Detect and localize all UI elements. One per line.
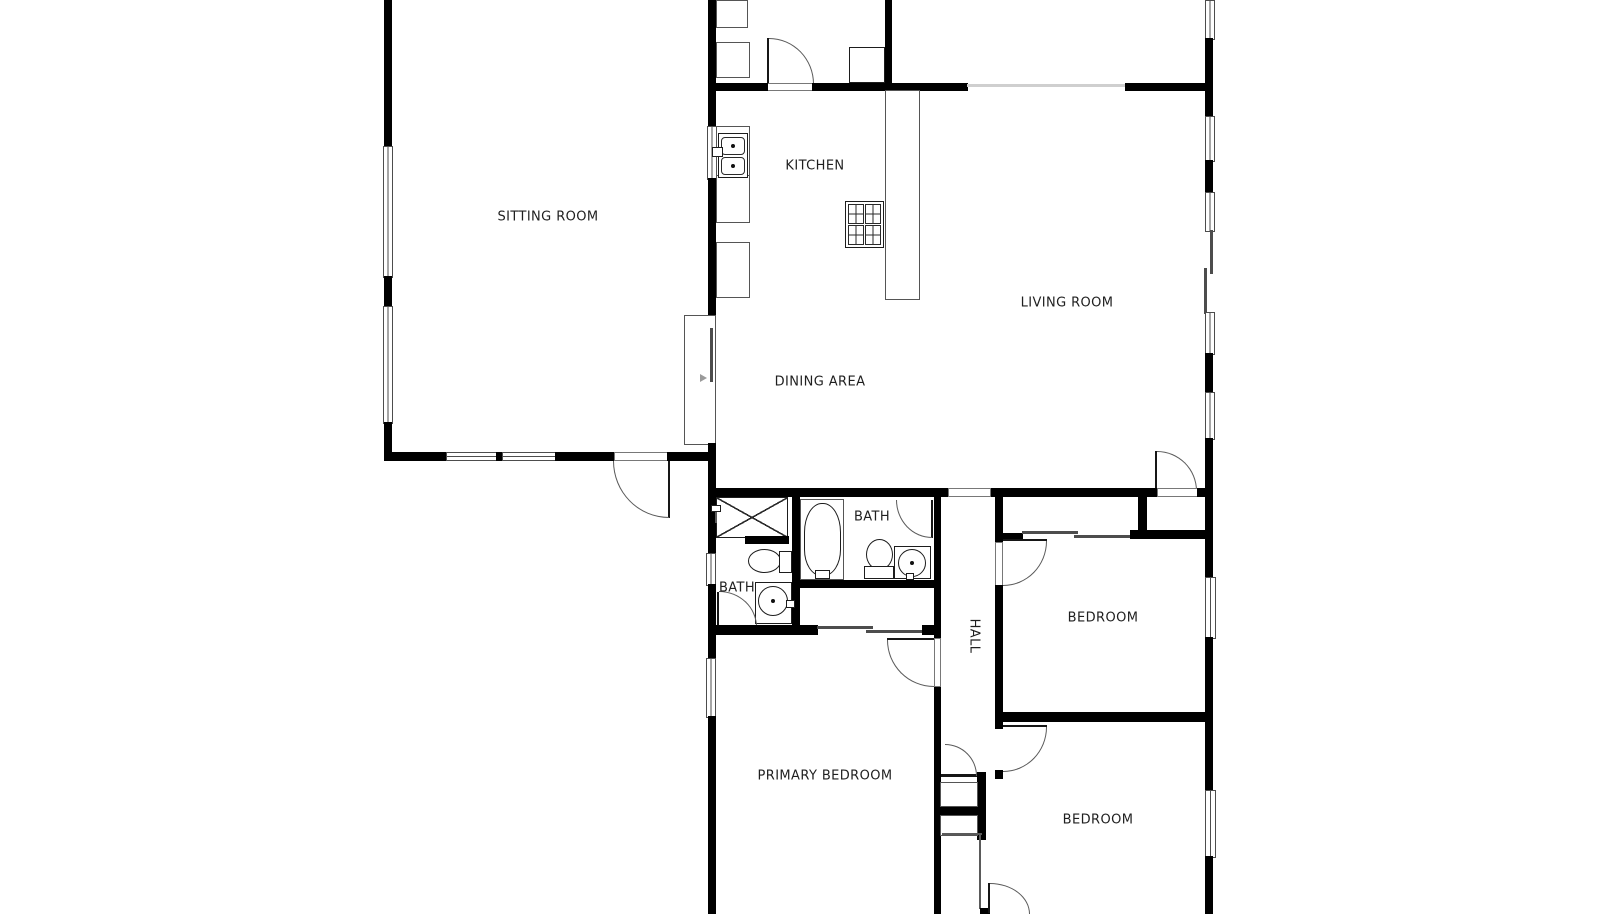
wall xyxy=(922,625,936,635)
window xyxy=(1205,577,1216,639)
door-swing-arc xyxy=(769,38,814,84)
closet-sliding-door xyxy=(817,626,873,629)
toilet-bowl xyxy=(748,549,781,573)
door-opening xyxy=(934,638,941,687)
window xyxy=(1205,312,1215,355)
window xyxy=(1205,116,1215,162)
wall xyxy=(1125,83,1211,91)
floor-plan: SITTING ROOM KITCHEN LIVING ROOM DINING … xyxy=(0,0,1600,914)
door-swing-arc xyxy=(990,883,1030,914)
closet-sliding-door xyxy=(1022,531,1078,534)
faucet xyxy=(712,147,723,157)
wall xyxy=(1205,353,1213,394)
stove-burner xyxy=(848,225,864,245)
slide-direction-arrow xyxy=(700,374,707,382)
wall xyxy=(708,716,716,914)
wall xyxy=(885,0,892,91)
tub-faucet xyxy=(815,570,830,579)
wall xyxy=(384,276,392,308)
wall xyxy=(1205,494,1213,579)
wall xyxy=(1205,38,1213,118)
window xyxy=(502,452,557,461)
sliding-door-panel xyxy=(710,328,713,382)
wall xyxy=(995,770,1003,779)
wall xyxy=(792,580,934,588)
room-label-hall: HALL xyxy=(967,619,982,654)
wall xyxy=(1205,160,1213,194)
door-swing-arc xyxy=(1003,727,1047,772)
window xyxy=(383,146,393,278)
door-swing-arc xyxy=(896,500,932,538)
window xyxy=(706,658,716,718)
wall xyxy=(716,625,818,635)
wall xyxy=(1130,530,1213,539)
window xyxy=(1205,192,1215,232)
stove-burner xyxy=(865,204,881,224)
stove-burner xyxy=(848,204,864,224)
sliding-door-panel xyxy=(1204,268,1207,314)
base-cabinet xyxy=(716,242,750,298)
door-opening xyxy=(614,452,669,461)
room-label-bath-main: BATH xyxy=(854,510,890,525)
wall xyxy=(745,536,789,544)
room-label-living-room: LIVING ROOM xyxy=(1021,296,1114,311)
window xyxy=(1205,0,1215,40)
window xyxy=(706,553,716,586)
kitchen-island xyxy=(885,90,920,300)
room-label-primary-bedroom: PRIMARY BEDROOM xyxy=(758,769,893,784)
faucet xyxy=(906,573,914,580)
door-swing-arc xyxy=(1003,541,1047,586)
door-opening xyxy=(1157,488,1198,497)
wall xyxy=(977,772,986,840)
bathtub-basin xyxy=(804,503,841,576)
room-label-bath-ensuite: BATH xyxy=(719,581,755,596)
cabinet xyxy=(716,42,750,78)
wall xyxy=(934,497,941,638)
water-heater xyxy=(849,47,885,83)
wall xyxy=(708,178,716,317)
room-label-bedroom-east: BEDROOM xyxy=(1068,611,1139,626)
wall xyxy=(995,712,1213,722)
room-label-kitchen: KITCHEN xyxy=(785,159,844,174)
shower-pipe xyxy=(715,512,717,523)
window xyxy=(383,306,393,424)
door-opening xyxy=(995,542,1003,587)
room-label-sitting-room: SITTING ROOM xyxy=(497,210,598,225)
sink-drain xyxy=(731,164,735,168)
door-swing-arc xyxy=(613,461,669,518)
stove-burner xyxy=(865,225,881,245)
wall xyxy=(384,452,448,461)
closet-line xyxy=(979,835,981,909)
door-opening xyxy=(766,83,813,91)
room-label-bedroom-south: BEDROOM xyxy=(1063,813,1134,828)
wall xyxy=(708,488,948,497)
wall xyxy=(995,585,1003,712)
wall xyxy=(708,0,716,128)
closet-shelf xyxy=(940,782,978,807)
shower xyxy=(716,497,788,538)
closet-sliding-door xyxy=(1074,535,1130,538)
faucet xyxy=(786,600,795,608)
window xyxy=(446,452,498,461)
toilet-tank xyxy=(864,566,894,579)
wall xyxy=(1205,856,1213,914)
shower-valve xyxy=(711,505,721,512)
window xyxy=(1205,790,1216,858)
open-boundary-line xyxy=(967,84,1126,87)
sink-drain xyxy=(731,144,735,148)
door-swing-arc xyxy=(719,591,757,627)
sink-drain xyxy=(771,599,775,603)
closet-sliding-door xyxy=(866,630,922,633)
wall xyxy=(940,807,986,815)
room-label-dining-area: DINING AREA xyxy=(775,375,866,390)
toilet-tank xyxy=(779,551,792,573)
wall xyxy=(555,452,616,461)
door-swing-arc xyxy=(887,640,934,687)
sink-drain xyxy=(910,561,914,565)
wall xyxy=(995,722,1003,729)
closet-line xyxy=(942,833,982,835)
wall xyxy=(708,584,716,660)
sliding-door-panel xyxy=(1210,230,1213,274)
door-swing-arc xyxy=(945,744,977,776)
wall xyxy=(991,488,1158,497)
window xyxy=(1205,392,1215,440)
door-swing-arc xyxy=(1157,451,1197,491)
wall xyxy=(716,83,768,91)
wall xyxy=(995,497,1003,544)
cabinet xyxy=(716,0,748,28)
wall xyxy=(384,0,392,148)
hall-opening xyxy=(948,488,991,497)
